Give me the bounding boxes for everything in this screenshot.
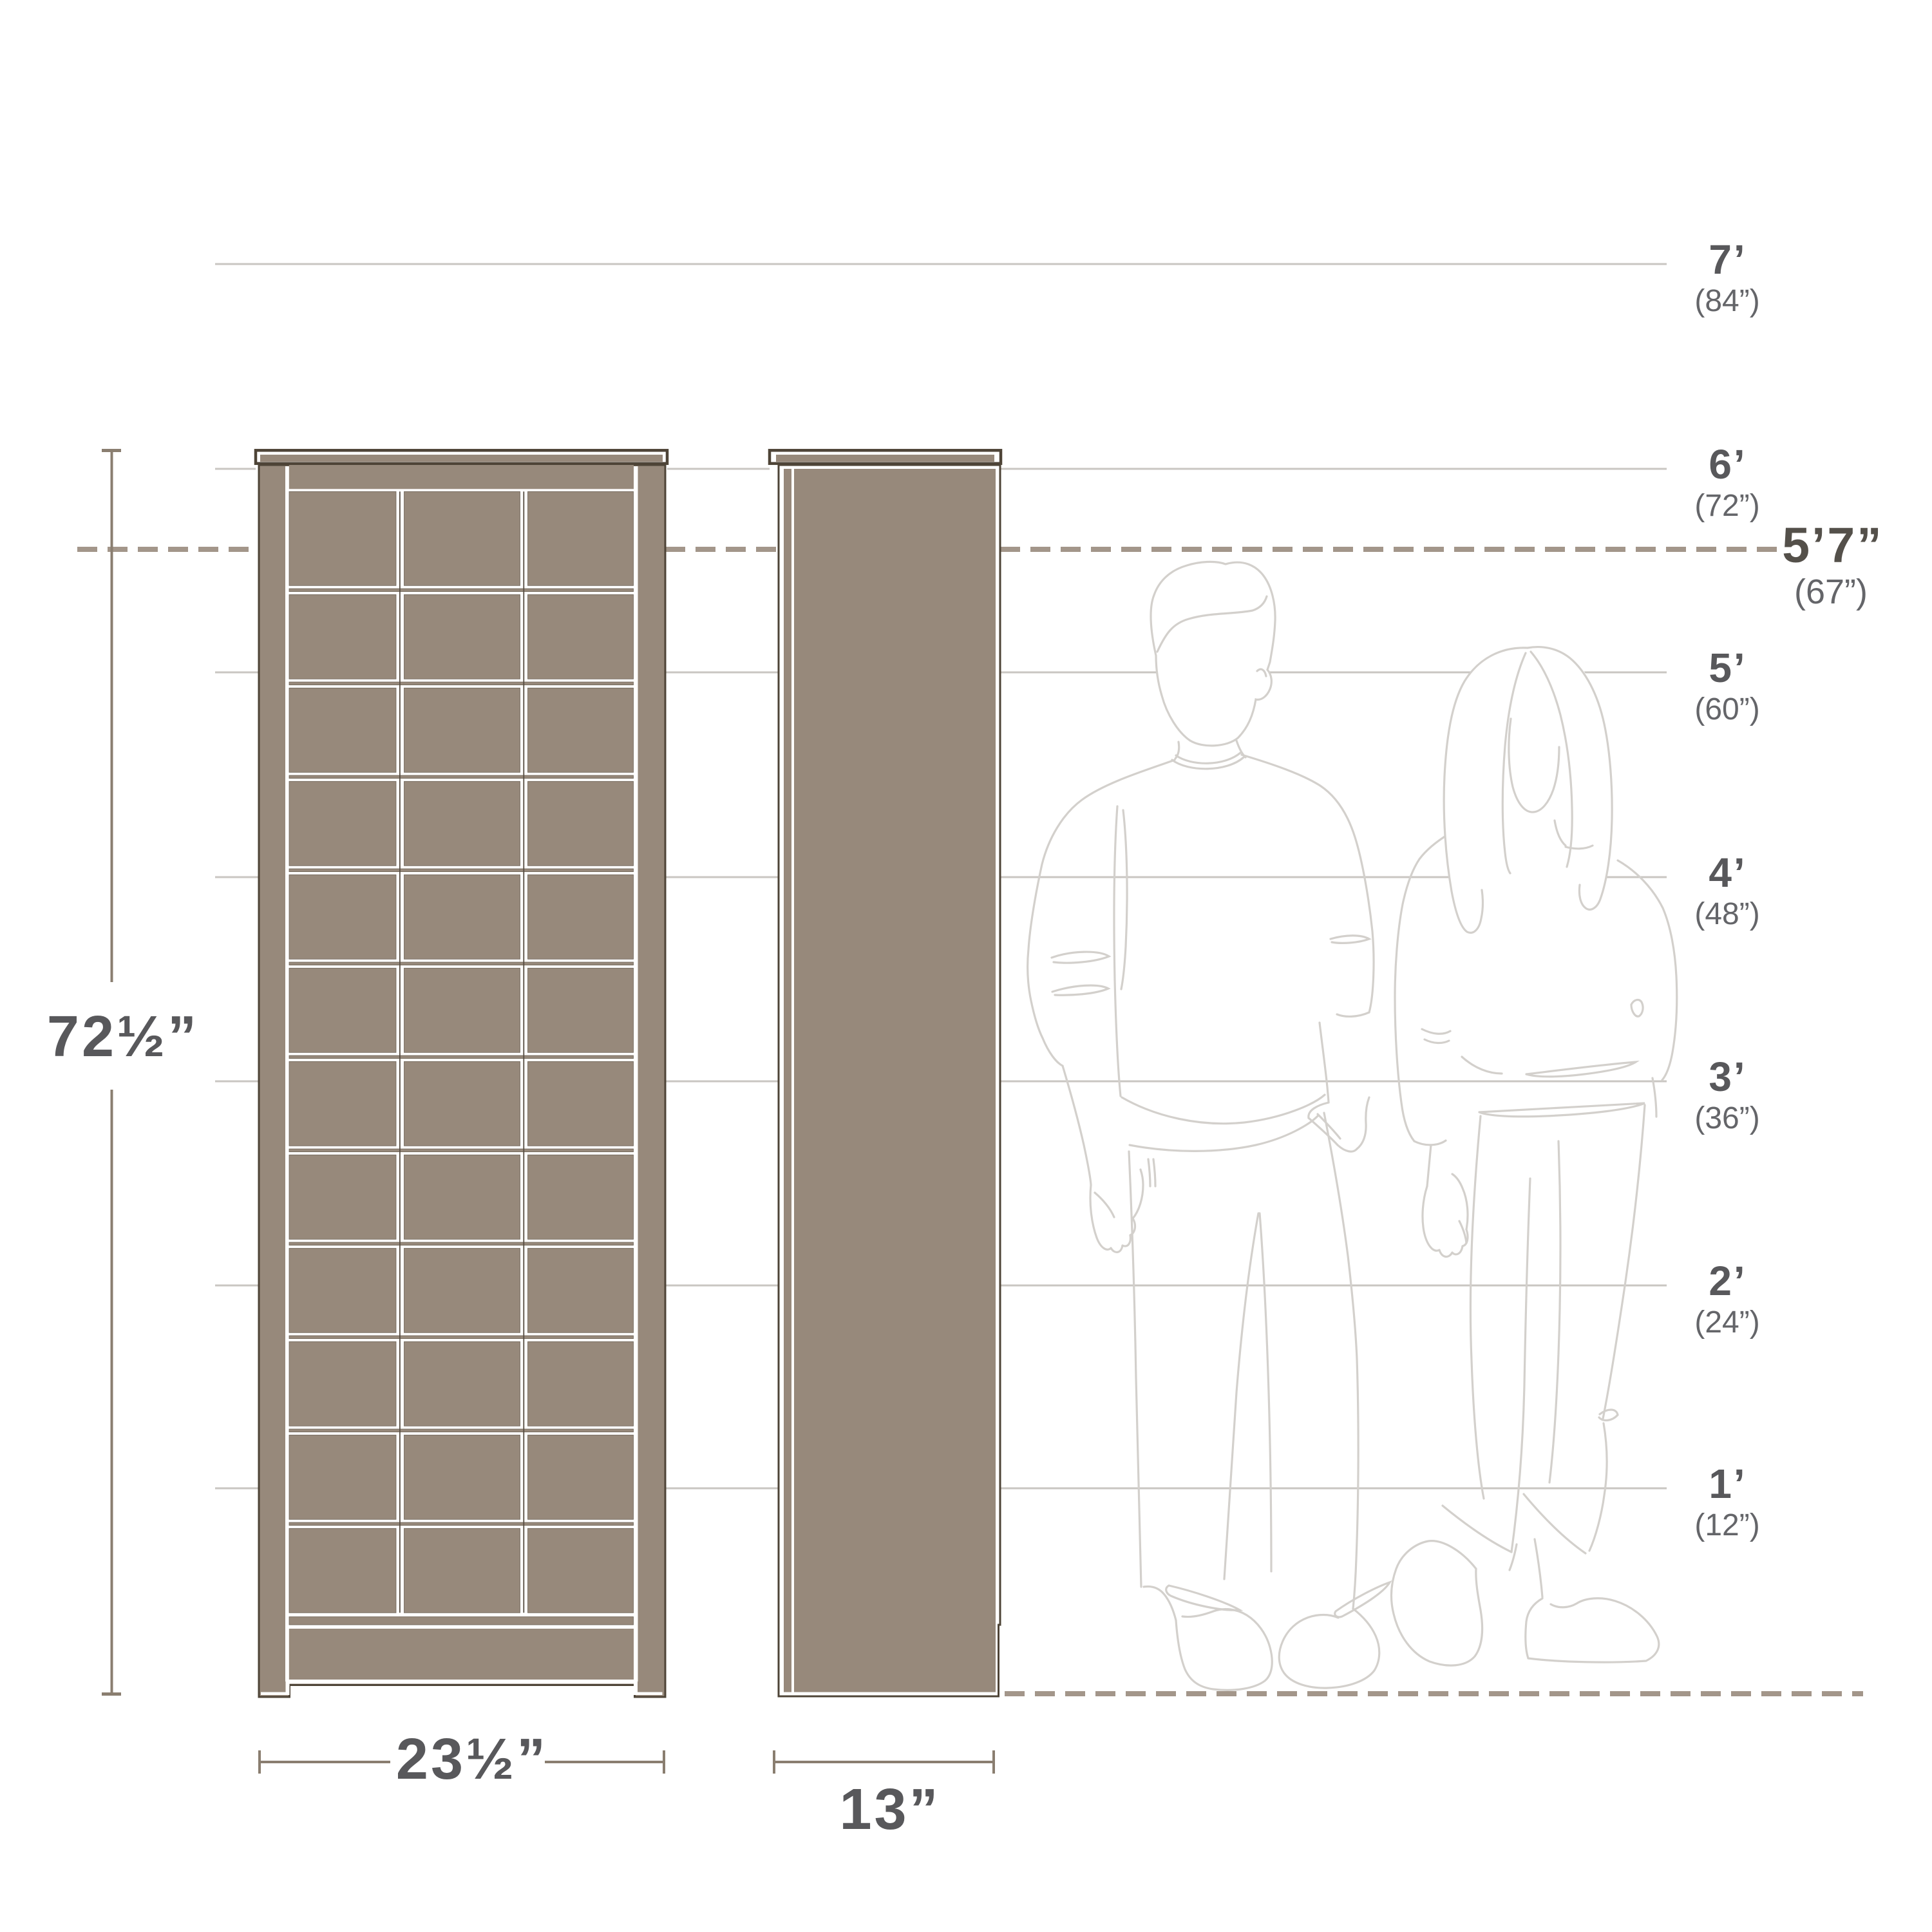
svg-text:(36”): (36”)	[1694, 1101, 1759, 1135]
svg-text:(12”): (12”)	[1694, 1508, 1759, 1542]
svg-text:(72”): (72”)	[1694, 489, 1759, 523]
svg-text:7’: 7’	[1709, 236, 1747, 283]
svg-text:(24”): (24”)	[1694, 1305, 1759, 1340]
svg-text:(67”): (67”)	[1794, 573, 1868, 611]
svg-text:(84”): (84”)	[1694, 284, 1759, 318]
svg-text:6’: 6’	[1709, 441, 1747, 488]
svg-text:2’: 2’	[1709, 1258, 1747, 1304]
svg-text:23½”: 23½”	[396, 1727, 548, 1792]
svg-text:72½”: 72½”	[47, 1005, 199, 1069]
svg-text:13”: 13”	[839, 1777, 940, 1842]
svg-text:5’7”: 5’7”	[1782, 518, 1884, 573]
svg-text:4’: 4’	[1709, 849, 1747, 896]
svg-text:3’: 3’	[1709, 1054, 1747, 1100]
svg-text:(60”): (60”)	[1694, 692, 1759, 726]
svg-text:(48”): (48”)	[1694, 897, 1759, 931]
svg-text:1’: 1’	[1709, 1461, 1747, 1507]
svg-text:5’: 5’	[1709, 645, 1747, 691]
